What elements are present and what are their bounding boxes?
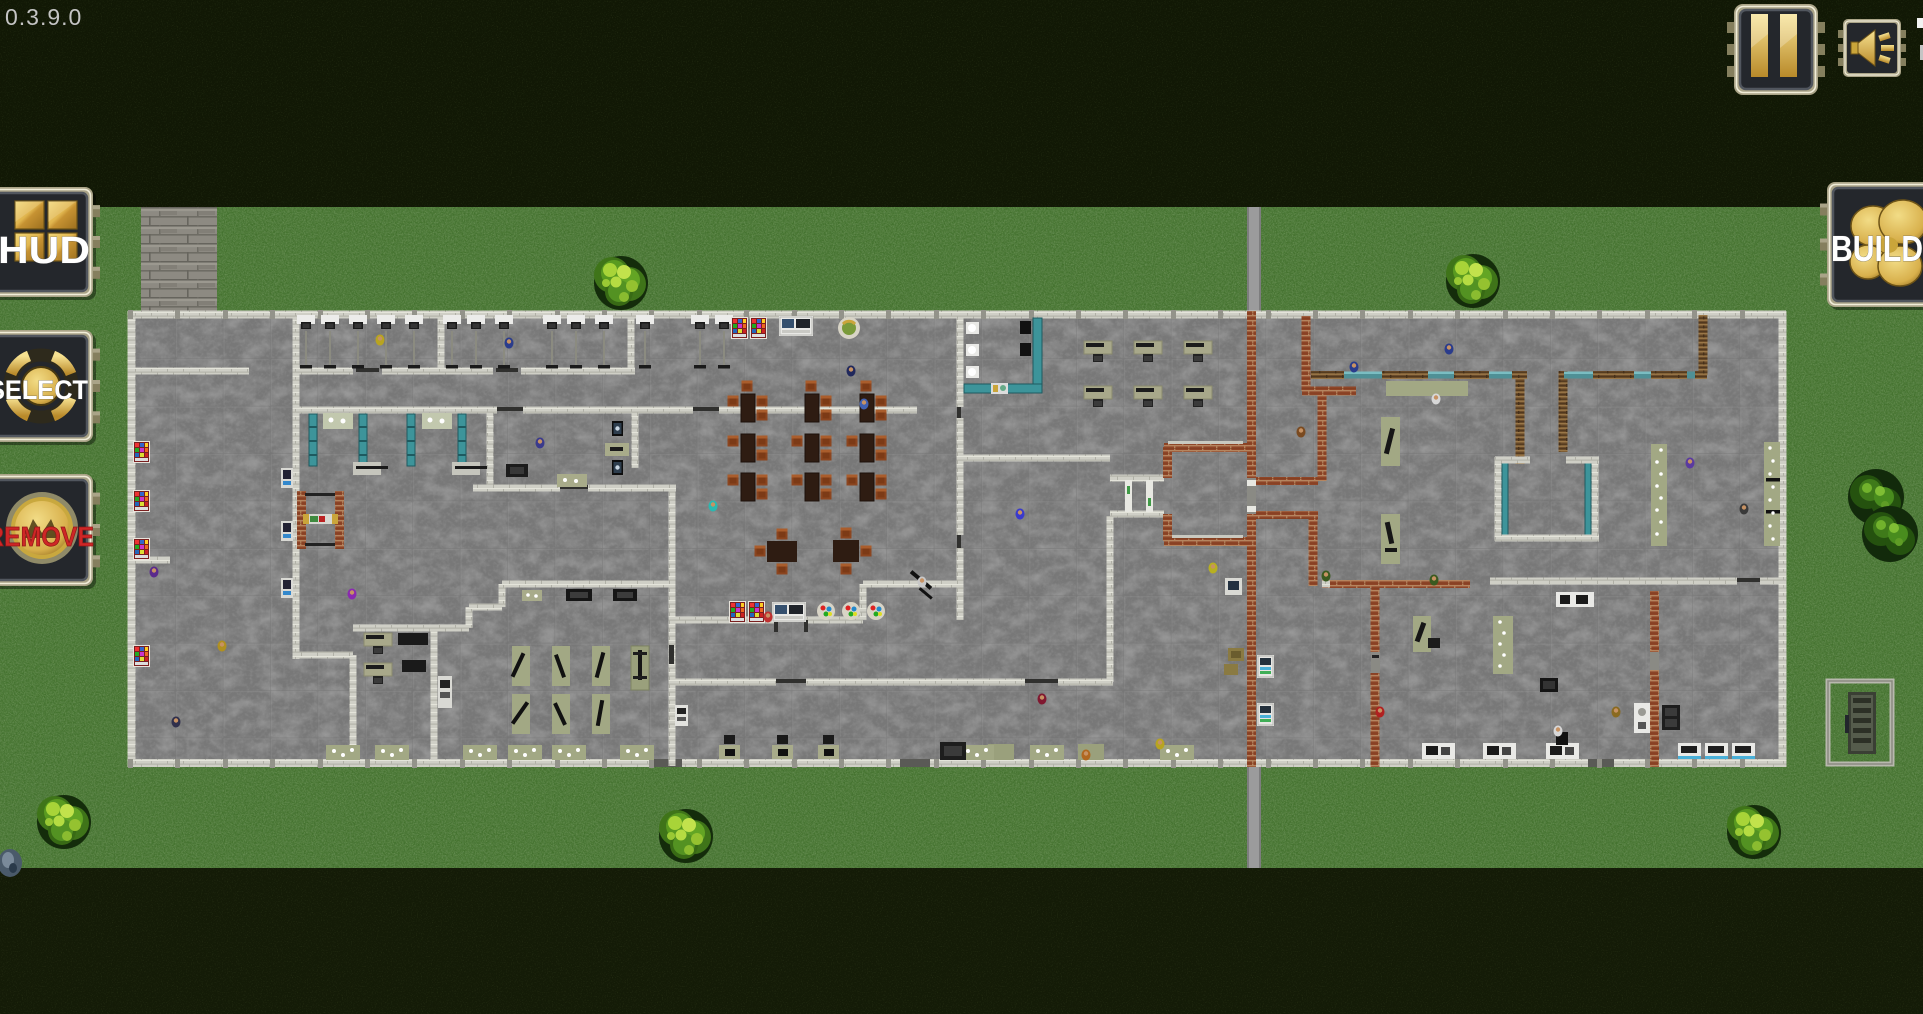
- svg-text:0.3.9.0: 0.3.9.0: [5, 4, 82, 30]
- svg-text:HUD: HUD: [0, 230, 90, 272]
- svg-text:SELECT: SELECT: [0, 375, 88, 405]
- svg-text:REMOVE: REMOVE: [0, 521, 94, 552]
- svg-text:BUILD: BUILD: [1831, 228, 1923, 269]
